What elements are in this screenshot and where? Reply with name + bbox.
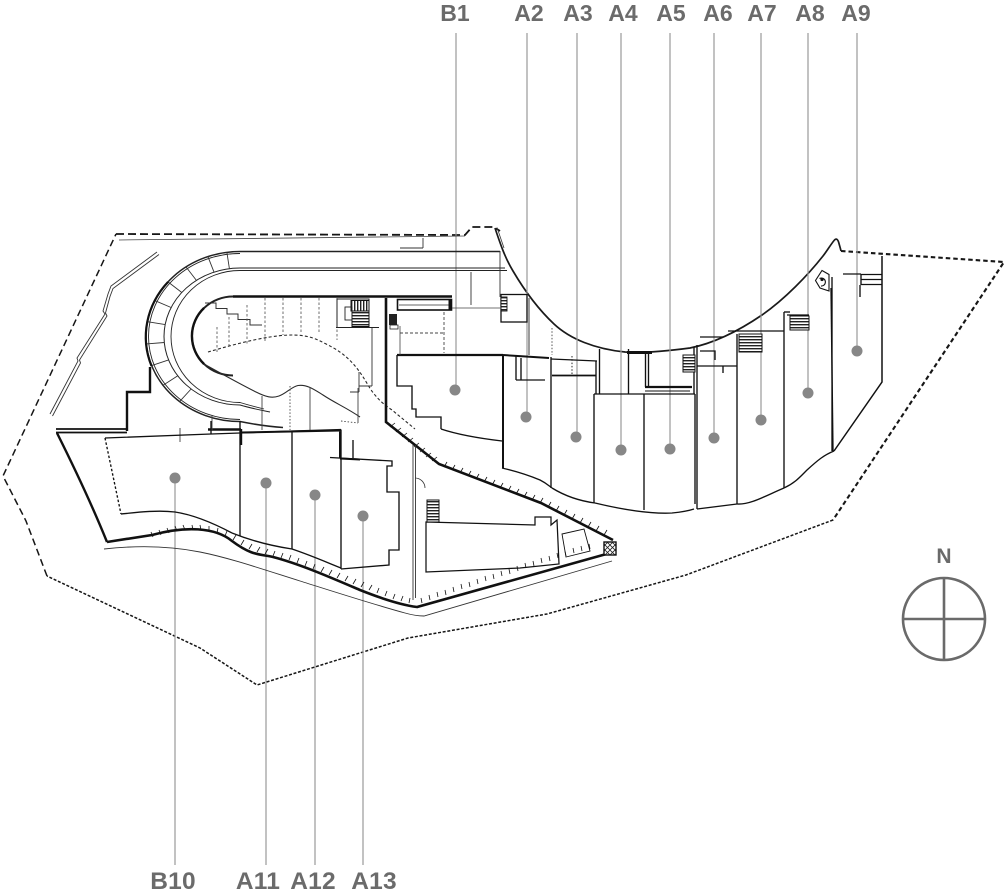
svg-text:N: N bbox=[936, 545, 951, 568]
svg-text:A6: A6 bbox=[703, 0, 732, 26]
svg-text:A4: A4 bbox=[608, 0, 638, 26]
svg-text:A8: A8 bbox=[795, 0, 825, 26]
svg-text:A5: A5 bbox=[656, 0, 686, 26]
svg-text:B1: B1 bbox=[440, 0, 470, 26]
svg-text:A2: A2 bbox=[514, 0, 543, 26]
svg-text:A11: A11 bbox=[236, 868, 280, 895]
svg-text:A3: A3 bbox=[563, 0, 592, 26]
svg-text:A13: A13 bbox=[351, 868, 397, 895]
svg-text:A7: A7 bbox=[747, 0, 776, 26]
svg-text:A12: A12 bbox=[290, 868, 336, 895]
svg-text:B10: B10 bbox=[150, 868, 196, 895]
svg-text:A9: A9 bbox=[841, 0, 870, 26]
